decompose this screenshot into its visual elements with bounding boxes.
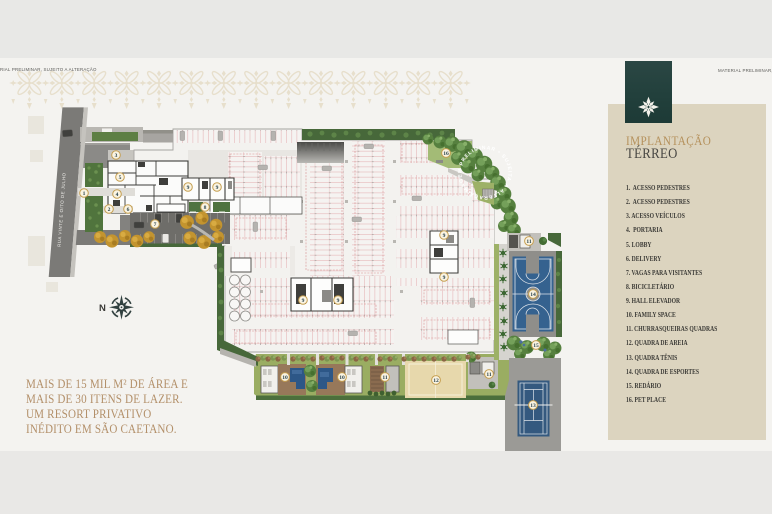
svg-text:3: 3 (115, 153, 118, 159)
svg-text:5: 5 (119, 175, 122, 181)
svg-text:10: 10 (282, 375, 288, 381)
svg-text:12: 12 (433, 378, 439, 384)
svg-text:6: 6 (127, 207, 130, 213)
svg-text:13: 13 (530, 403, 536, 409)
svg-text:N: N (99, 303, 106, 314)
svg-text:11: 11 (382, 375, 387, 381)
svg-text:9: 9 (443, 275, 446, 281)
svg-text:9: 9 (337, 298, 340, 304)
svg-text:9: 9 (187, 185, 190, 191)
svg-text:4: 4 (116, 192, 119, 198)
svg-text:9: 9 (302, 298, 305, 304)
svg-text:11: 11 (486, 372, 491, 378)
svg-text:2: 2 (108, 207, 111, 213)
svg-text:14: 14 (530, 292, 536, 298)
svg-text:7: 7 (154, 222, 157, 228)
svg-text:15: 15 (533, 343, 539, 349)
svg-text:9: 9 (443, 233, 446, 239)
svg-text:16: 16 (443, 151, 449, 157)
svg-text:10: 10 (339, 375, 345, 381)
svg-text:11: 11 (526, 239, 531, 245)
svg-text:1: 1 (83, 191, 86, 197)
svg-text:8: 8 (204, 205, 207, 211)
svg-text:9: 9 (216, 185, 219, 191)
